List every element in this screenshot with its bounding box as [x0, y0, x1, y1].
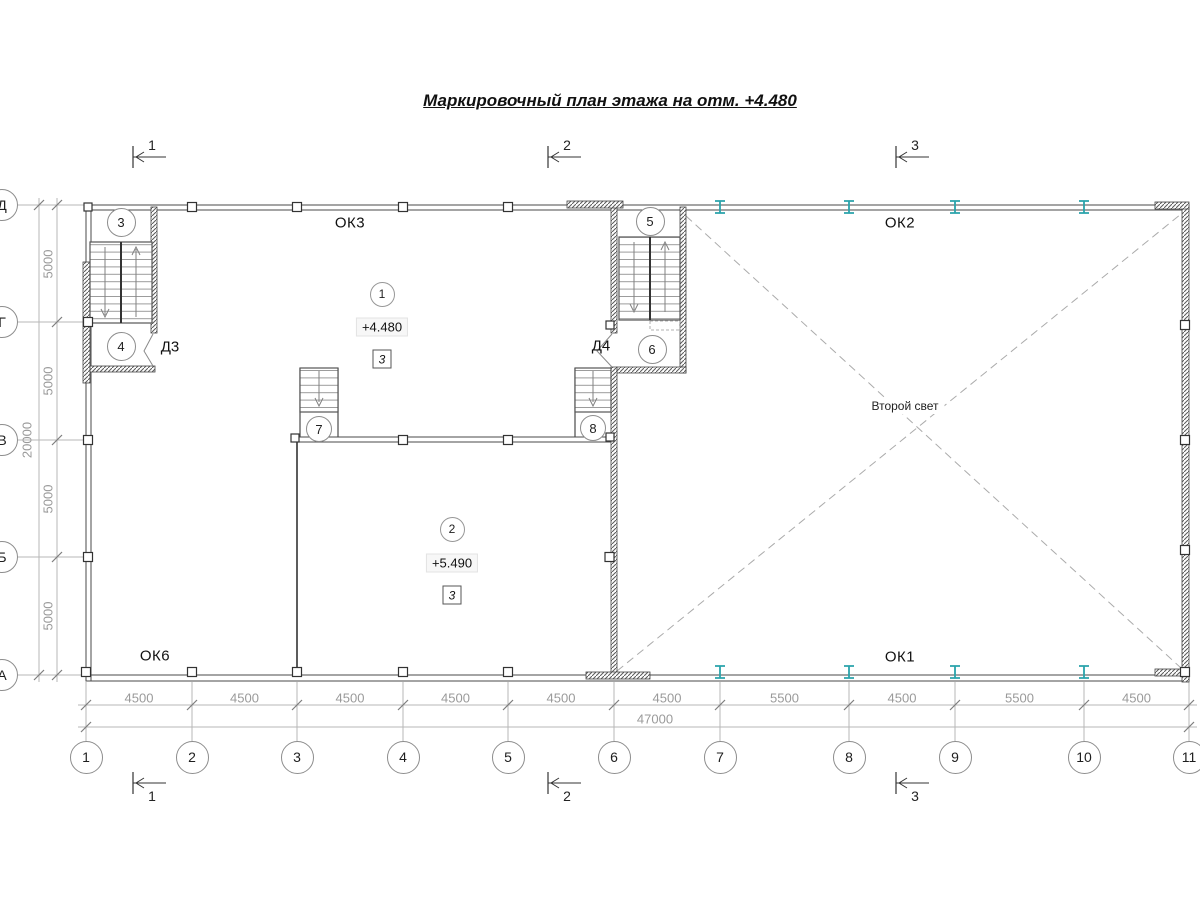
dim-G-V: 5000 — [41, 367, 56, 396]
dim-3-4: 4500 — [336, 691, 365, 706]
window-mark-ok3: ОК3 — [335, 215, 365, 232]
stair-mark-7: 7 — [306, 416, 332, 442]
room-1-elevation: +4.480 — [356, 318, 408, 337]
stair-mark-5: 5 — [636, 207, 665, 236]
axis-col-8: 8 — [833, 741, 866, 774]
room-2-number: 2 — [440, 517, 465, 542]
axis-col-7: 7 — [704, 741, 737, 774]
stair-mark-6: 6 — [638, 335, 667, 364]
dim-7-8: 5500 — [770, 691, 799, 706]
axis-col-3: 3 — [281, 741, 314, 774]
section-mark-2-bottom: 2 — [563, 788, 571, 804]
dim-4-5: 4500 — [441, 691, 470, 706]
axis-col-11: 11 — [1173, 741, 1200, 774]
room-2-elevation: +5.490 — [426, 554, 478, 573]
section-mark-1-bottom: 1 — [148, 788, 156, 804]
dim-B-A: 5000 — [41, 602, 56, 631]
door-mark-d3: Д3 — [161, 339, 180, 356]
section-mark-1-top: 1 — [148, 137, 156, 153]
dim-V-B: 5000 — [41, 484, 56, 513]
dim-8-9: 4500 — [888, 691, 917, 706]
window-mark-ok6: ОК6 — [140, 648, 170, 665]
walls-interior-lines — [297, 368, 575, 675]
axis-col-2: 2 — [176, 741, 209, 774]
section-mark-3-top: 3 — [911, 137, 919, 153]
axis-col-4: 4 — [387, 741, 420, 774]
grid-extension-lines — [18, 205, 1189, 741]
room-1-number: 1 — [370, 282, 395, 307]
axis-col-5: 5 — [492, 741, 525, 774]
axis-col-1: 1 — [70, 741, 103, 774]
window-mark-ok1: ОК1 — [885, 649, 915, 666]
dim-2-3: 4500 — [230, 691, 259, 706]
plan-title: Маркировочный план этажа на отм. +4.480 — [423, 91, 797, 111]
section-mark-2-top: 2 — [563, 137, 571, 153]
axis-col-9: 9 — [939, 741, 972, 774]
room-2-floor-type: 3 — [443, 586, 462, 605]
room-1-floor-type: 3 — [373, 350, 392, 369]
floor-plan-canvas: Маркировочный план этажа на отм. +4.480 … — [0, 0, 1200, 900]
stair-mark-8: 8 — [580, 415, 606, 441]
dim-10-11: 4500 — [1122, 691, 1151, 706]
dimension-lines — [39, 198, 1197, 727]
stair-mark-3: 3 — [107, 208, 136, 237]
dim-9-10: 5500 — [1005, 691, 1034, 706]
dim-6-7: 4500 — [653, 691, 682, 706]
axis-col-6: 6 — [598, 741, 631, 774]
dim-D-G: 5000 — [41, 249, 56, 278]
door-mark-d4: Д4 — [592, 338, 611, 355]
dim-total-height: 20000 — [20, 422, 35, 458]
dim-5-6: 4500 — [547, 691, 576, 706]
dim-1-2: 4500 — [125, 691, 154, 706]
section-mark-3-bottom: 3 — [911, 788, 919, 804]
second-light-cross — [617, 214, 1181, 671]
second-light-label: Второй свет — [865, 398, 944, 414]
stair-mark-4: 4 — [107, 332, 136, 361]
dim-total-width: 47000 — [637, 712, 673, 727]
window-mark-ok2: ОК2 — [885, 215, 915, 232]
axis-col-10: 10 — [1068, 741, 1101, 774]
